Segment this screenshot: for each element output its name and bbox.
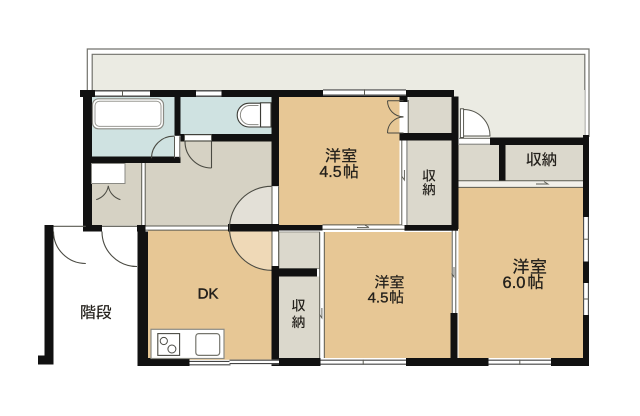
svg-text:DK: DK bbox=[198, 286, 219, 303]
svg-text:4.5: 4.5 bbox=[368, 290, 389, 307]
svg-text:4.5: 4.5 bbox=[319, 164, 341, 181]
svg-text:6.0: 6.0 bbox=[503, 274, 526, 292]
